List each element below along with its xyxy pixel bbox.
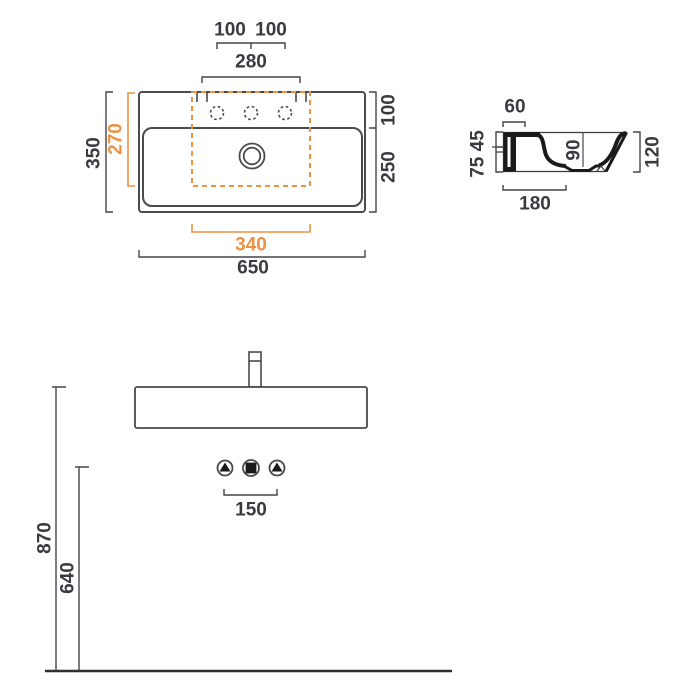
dim-280-label: 280 [235,53,267,72]
dim-120-bracket [633,132,640,172]
dim-60-label: 60 [504,98,525,117]
dim-280-bracket [202,77,300,83]
dim-60-bracket [503,122,525,127]
supply-symbol-right [270,461,285,476]
dim-150-label: 150 [235,501,267,520]
dim-650-label: 650 [237,259,269,278]
drawing-linework [0,0,700,700]
dim-640-label: 640 [59,562,78,594]
technical-drawing-sheet: { "drawing": { "kind": "washbasin dimens… [0,0,700,700]
front-dimension-lines [52,387,277,671]
dim-180-bracket [503,185,566,190]
section-fixing-ticks [492,147,503,152]
dim-340-label: 340 [235,236,267,255]
section-wall-slit [508,137,511,167]
connection-symbols [218,460,285,476]
dim-350-label: 350 [85,137,104,169]
plan-view [106,43,376,257]
tap-icon [249,352,261,387]
dim-90-label: 90 [565,139,584,160]
dim-250-label: 250 [380,151,399,183]
dim-270-label: 270 [107,123,126,155]
dim-100-250-bracket [369,92,376,212]
dim-100-left-label: 100 [214,21,246,40]
dim-100-deck-label: 100 [380,94,399,126]
supply-symbol-left [218,461,233,476]
dim-870-label: 870 [36,522,55,554]
dim-100-100-bracket [217,43,285,49]
dim-75-45-label: 75 45 [469,130,488,178]
dim-270-bracket [128,93,135,186]
dim-120-label: 120 [644,136,663,168]
dim-100-right-label: 100 [255,21,287,40]
front-basin-outline [135,387,367,428]
plan-basin-outline [139,92,365,212]
dim-340-bracket [192,224,310,232]
dim-180-label: 180 [519,195,551,214]
waste-symbol [243,460,259,476]
dim-150-bracket [224,489,277,495]
